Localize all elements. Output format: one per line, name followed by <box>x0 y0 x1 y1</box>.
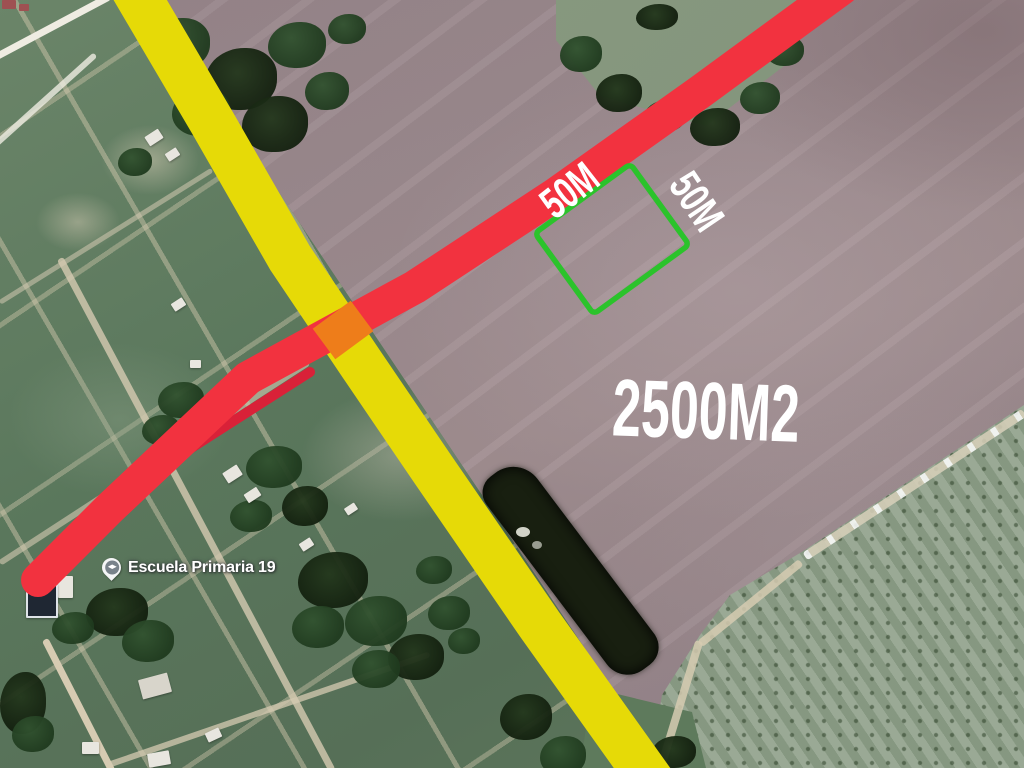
school-pin-circle <box>105 561 119 575</box>
poi-school[interactable]: Escuela Primaria 19 <box>102 558 275 577</box>
highlighted-road-yellow <box>132 0 652 768</box>
intersection-highlight <box>324 316 362 344</box>
area-label: 2500M2 <box>611 368 801 455</box>
satellite-map: 50M 50M 2500M2 Escuela Primaria 19 <box>0 0 1024 768</box>
route-overlay <box>0 0 1024 768</box>
poi-label[interactable]: Escuela Primaria 19 <box>128 559 275 577</box>
school-pin-icon[interactable] <box>98 554 125 581</box>
graduation-cap-icon <box>107 565 116 571</box>
